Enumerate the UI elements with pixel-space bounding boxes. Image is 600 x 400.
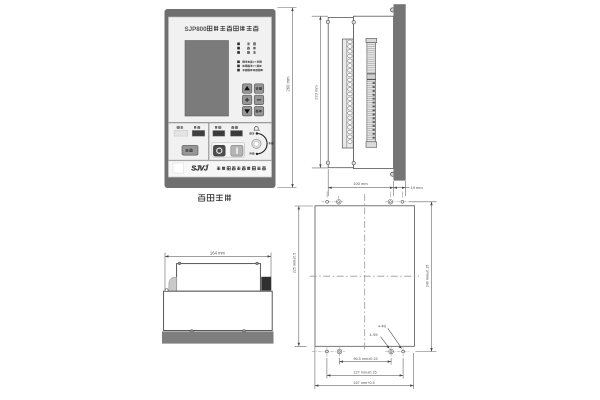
svg-text:4-Φ4: 4-Φ4: [370, 333, 378, 337]
svg-text:164 mm: 164 mm: [210, 251, 226, 256]
svg-text:SJP800: SJP800: [185, 26, 208, 33]
svg-text:260 mm: 260 mm: [286, 76, 291, 92]
svg-text:PT: PT: [253, 64, 257, 68]
svg-text:167 mm+0.5: 167 mm+0.5: [353, 381, 374, 385]
svg-text:100 mm: 100 mm: [353, 181, 368, 186]
svg-text:19 mm: 19 mm: [411, 185, 424, 190]
svg-text:225 mm±0.5: 225 mm±0.5: [293, 253, 297, 273]
svg-text:127 mm±0.15: 127 mm±0.15: [353, 371, 376, 375]
svg-text:223 mm: 223 mm: [313, 85, 318, 100]
svg-text:240 mm±0.15: 240 mm±0.15: [425, 265, 429, 288]
svg-text:SJVJ: SJVJ: [191, 163, 209, 172]
svg-text:4-Φ6: 4-Φ6: [378, 325, 386, 329]
svg-text:96.5 mm±0.15: 96.5 mm±0.15: [353, 357, 377, 361]
